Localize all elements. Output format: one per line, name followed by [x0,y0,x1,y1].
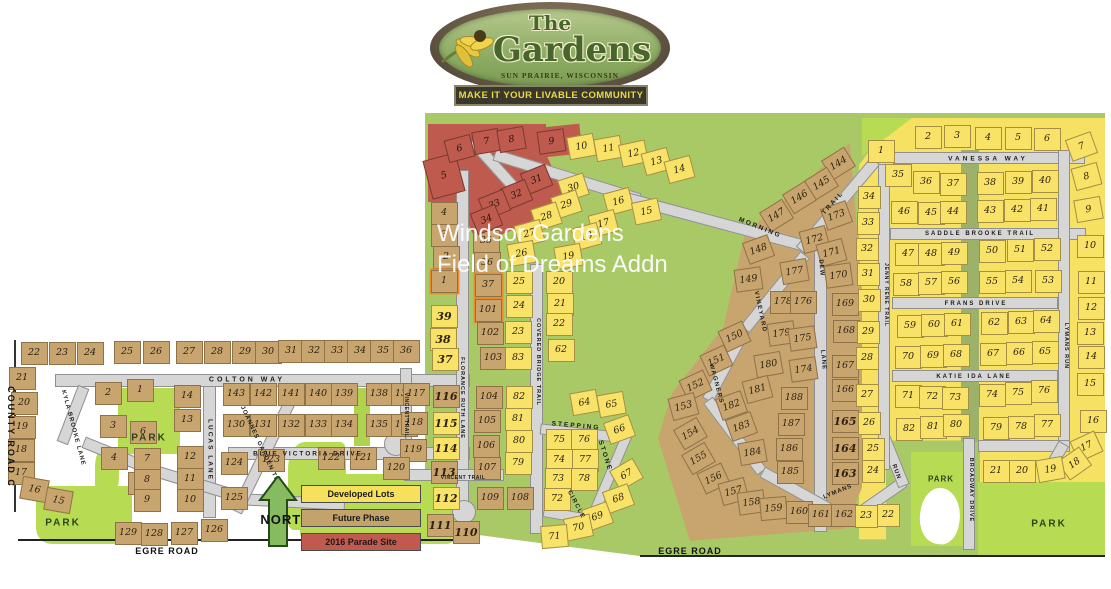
lot-53: 53 [1035,270,1062,293]
street-label-lucas-lane: LUCAS LANE [207,419,214,481]
lot-101: 101 [475,299,502,322]
lot-184: 184 [737,438,768,465]
logo-gardens: Gardens [452,30,692,70]
lot-133: 133 [305,414,332,437]
logo: The Gardens SUN PRAIRIE, WISCONSIN MAKE … [430,2,670,110]
lot-180: 180 [753,350,784,377]
street-label-egre-road: EGRE ROAD [135,546,199,556]
lot-127: 127 [171,522,198,545]
lot-65: 65 [1032,341,1059,364]
lot-185: 185 [777,461,804,484]
lot-43: 43 [977,200,1004,223]
lot-175: 175 [787,325,817,352]
lot-126: 126 [201,519,228,542]
legend: Developed Lots Future Phase 2016 Parade … [301,485,421,551]
lot-80: 80 [506,430,533,453]
lot-66: 66 [1006,342,1033,365]
park-label: PARK [131,433,167,444]
lot-111: 111 [427,514,454,537]
lot-188: 188 [781,387,808,410]
lot-21: 21 [983,460,1010,483]
lot-65: 65 [596,390,627,417]
lot-74: 74 [979,384,1006,407]
overlay-title: Windsor Gardens Field of Dreams Addn [437,218,668,280]
lot-106: 106 [473,435,500,458]
lot-187: 187 [778,413,805,436]
lot-36: 36 [393,340,420,363]
lot-22: 22 [546,313,573,336]
lot-13: 13 [1077,322,1104,345]
street-label-florance-ruth-lane: FLORANCE RUTH LANE [459,357,465,439]
lot-162: 162 [831,504,858,527]
lot-54: 54 [1005,270,1032,293]
lot-55: 55 [979,271,1006,294]
lot-28: 28 [204,341,231,364]
street-label-blue-victoria-drive: BLUE VICTORIA DRIVE [253,451,363,458]
lot-132: 132 [278,414,305,437]
street-label-vanessa-way: VANESSA WAY [948,156,1028,163]
lot-25: 25 [862,438,885,461]
lot-24: 24 [77,342,104,365]
lot-70: 70 [895,346,922,369]
lot-3: 3 [944,125,971,148]
lot-124: 124 [221,452,248,475]
street-label-frans-drive: FRANS DRIVE [945,301,1008,307]
lot-39: 39 [1005,171,1032,194]
lot-105: 105 [474,410,501,433]
lot-75: 75 [1005,382,1032,405]
lot-42: 42 [1004,199,1031,222]
lot-10: 10 [177,489,204,512]
overlay-title-line2: Field of Dreams Addn [437,249,668,280]
lot-138: 138 [366,383,393,406]
lot-166: 166 [832,379,859,402]
lot-11: 11 [1078,271,1105,294]
lot-23: 23 [49,342,76,365]
lot-82: 82 [896,418,923,441]
lot-51: 51 [1007,239,1034,262]
lot-34: 34 [858,186,881,209]
lot-39: 39 [431,305,458,328]
lot-35: 35 [885,164,912,187]
lot-164: 164 [832,437,859,460]
lot-28: 28 [856,347,879,370]
lot-83: 83 [505,347,532,370]
logo-banner: MAKE IT YOUR LIVABLE COMMUNITY [456,87,646,104]
lot-22: 22 [21,342,48,365]
lot-168: 168 [833,320,860,343]
lot-12: 12 [1078,297,1105,320]
lot-116: 116 [433,385,460,408]
lot-62: 62 [981,312,1008,335]
lot-19: 19 [1035,455,1066,482]
lot-77: 77 [1034,414,1061,437]
plat-map: 2223242526272829303132333435362120191817… [0,0,1111,589]
lot-142: 142 [250,383,277,406]
lot-49: 49 [941,242,968,265]
lot-108: 108 [507,487,534,510]
lot-73: 73 [942,387,969,410]
lot-30: 30 [858,289,881,312]
lot-6: 6 [1034,128,1061,151]
lot-149: 149 [733,266,763,293]
lot-4: 4 [975,127,1002,150]
lot-110: 110 [453,521,480,544]
street-label-lymans-run: LYMANS RUN [1063,323,1069,369]
lot-115: 115 [433,412,460,435]
street-label-covered-bridge-trail: COVERED BRIDGE TRAIL [535,318,541,406]
lot-177: 177 [779,257,810,284]
lot-125: 125 [221,487,248,510]
lot-80: 80 [943,414,970,437]
lot-37: 37 [432,348,459,371]
street-label-saddle-brooke-trail: SADDLE BROOKE TRAIL [925,231,1035,237]
lot-1: 1 [868,140,895,163]
lot-52: 52 [1034,238,1061,261]
lot-165: 165 [832,410,859,433]
lot-31: 31 [857,263,880,286]
lot-15: 15 [1077,373,1104,396]
lot-167: 167 [832,355,859,378]
lot-170: 170 [823,262,853,289]
lot-10: 10 [566,132,597,159]
lot-26: 26 [858,412,881,435]
lot-10: 10 [1077,235,1104,258]
lot-4: 4 [101,447,128,470]
lot-24: 24 [862,460,885,483]
lot-112: 112 [433,487,460,510]
lot-68: 68 [943,344,970,367]
lot-140: 140 [305,383,332,406]
street-label-katie-ida-lane: KATIE IDA LANE [936,374,1011,380]
lot-44: 44 [940,201,967,224]
street-label-jenny-rene-trail: JENNY RENE TRAIL [883,263,889,327]
lot-76: 76 [1031,380,1058,403]
lot-64: 64 [569,388,600,415]
street-label-broadway-drive: BROADWAY DRIVE [968,458,974,522]
lot-159: 159 [759,495,788,520]
lot-163: 163 [832,462,859,485]
street-label-egre-road: EGRE ROAD [658,546,722,556]
lot-9: 9 [536,128,566,155]
street-label-colton-way: COLTON WAY [209,377,285,384]
lot-67: 67 [980,343,1007,366]
lot-25: 25 [114,341,141,364]
street-label-vincent-trail: VINCENT TRAIL [441,475,486,481]
lot-56: 56 [941,271,968,294]
lot-139: 139 [331,383,358,406]
lot-79: 79 [983,417,1010,440]
lot-134: 134 [331,414,358,437]
lot-38: 38 [977,172,1004,195]
lot-104: 104 [476,386,503,409]
lot-58: 58 [893,273,920,296]
park-label: PARK [1031,519,1067,530]
lot-41: 41 [1030,198,1057,221]
road [1058,150,1070,446]
lot-15: 15 [43,486,74,513]
park-label: PARK [45,518,81,529]
lot-63: 63 [1008,311,1035,334]
lot-9: 9 [134,489,161,512]
lot-22: 22 [877,504,900,527]
lot-1: 1 [127,379,154,402]
lot-27: 27 [176,341,203,364]
lot-102: 102 [477,322,504,345]
lot-23: 23 [855,505,878,528]
lot-13: 13 [174,409,201,432]
lot-120: 120 [383,457,410,480]
lot-14: 14 [1078,346,1105,369]
legend-parade-site: 2016 Parade Site [301,533,421,551]
lot-33: 33 [857,212,880,235]
lot-64: 64 [1033,310,1060,333]
lot-26: 26 [143,341,170,364]
lot-82: 82 [506,386,533,409]
street-label-county-road-c: COUNTY ROAD C [6,386,16,488]
lot-186: 186 [776,438,803,461]
lot-2: 2 [915,126,942,149]
lot-78: 78 [1008,416,1035,439]
legend-future-phase: Future Phase [301,509,421,527]
lot-37: 37 [940,173,967,196]
lot-32: 32 [856,238,879,261]
lot-2: 2 [95,382,122,405]
lot-27: 27 [856,384,879,407]
lot-129: 129 [115,522,142,545]
lot-14: 14 [174,385,201,408]
lot-11: 11 [177,468,204,491]
lot-3: 3 [100,415,127,438]
lot-61: 61 [944,313,971,336]
lot-143: 143 [223,383,250,406]
lot-9: 9 [1073,195,1104,222]
lot-114: 114 [433,437,460,460]
lot-24: 24 [506,295,533,318]
lot-169: 169 [832,293,859,316]
lot-62: 62 [548,339,575,362]
lot-40: 40 [1032,170,1059,193]
lot-109: 109 [477,487,504,510]
lot-176: 176 [790,291,817,314]
lot-5: 5 [1005,127,1032,150]
lot-141: 141 [278,383,305,406]
overlay-title-line1: Windsor Gardens [437,218,668,249]
logo-subtitle: SUN PRAIRIE, WISCONSIN [440,71,680,80]
street-label-vincent-trail: VINCENT TRAIL [403,393,409,438]
lot-78: 78 [571,468,598,491]
lot-71: 71 [540,523,569,548]
lot-8: 8 [496,125,527,152]
lot-50: 50 [979,240,1006,263]
park-label: PARK [928,475,954,484]
lot-16: 16 [1080,410,1107,433]
lot-29: 29 [857,321,880,344]
lot-23: 23 [505,321,532,344]
legend-developed-lots: Developed Lots [301,485,421,503]
lot-59: 59 [897,315,924,338]
lot-135: 135 [366,414,393,437]
lot-81: 81 [505,408,532,431]
lot-79: 79 [505,452,532,475]
lot-36: 36 [913,171,940,194]
lot-12: 12 [177,446,204,469]
lot-174: 174 [788,356,818,383]
lot-128: 128 [141,523,168,546]
lot-103: 103 [480,347,507,370]
lot-46: 46 [891,201,918,224]
lot-71: 71 [895,385,922,408]
lot-20: 20 [1009,460,1036,483]
lot-7: 7 [134,448,161,471]
